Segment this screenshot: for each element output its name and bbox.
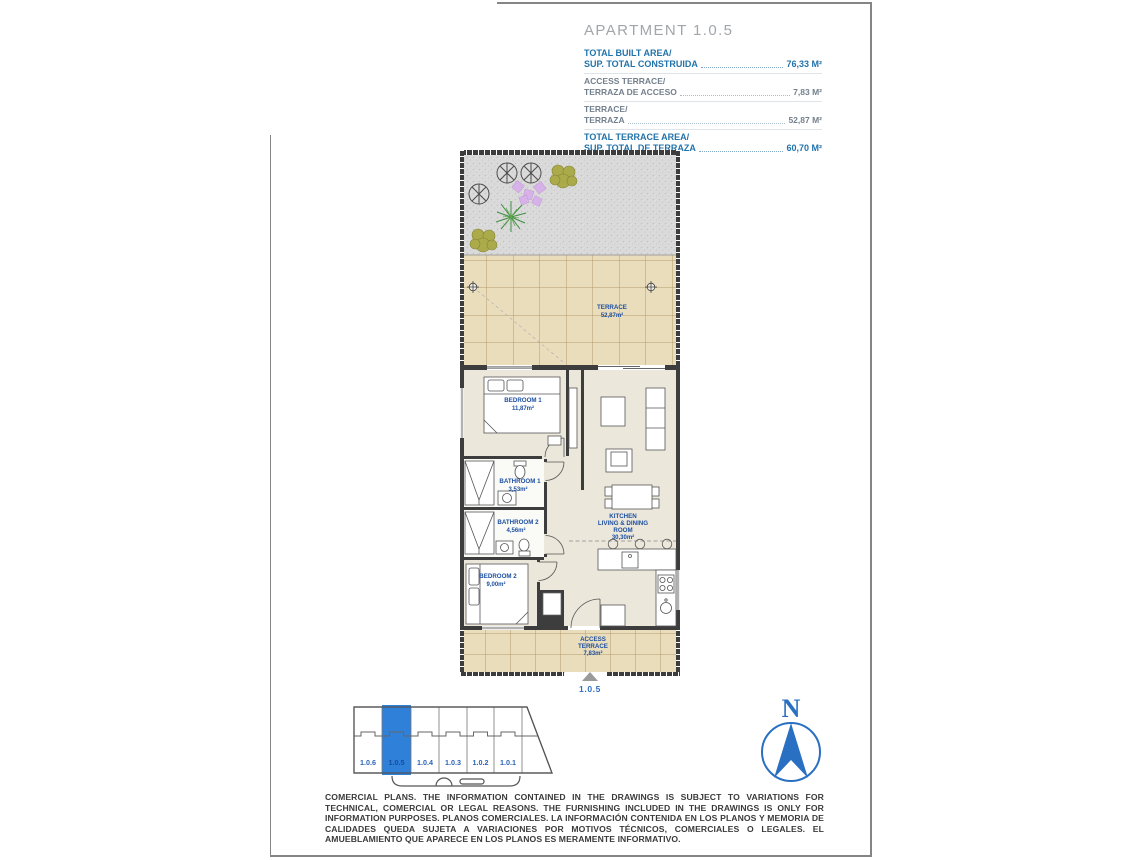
svg-text:7,83m²: 7,83m² bbox=[583, 650, 602, 657]
sheet-border-right bbox=[870, 2, 872, 857]
toilet-icon bbox=[514, 461, 526, 479]
keyplan-unit-103: 1.0.3 bbox=[445, 758, 461, 767]
sheet-border-left bbox=[270, 135, 271, 857]
area-table: TOTAL BUILT AREA/ SUP. TOTAL CONSTRUIDA7… bbox=[584, 46, 822, 157]
north-label: N bbox=[782, 694, 801, 723]
svg-text:3,53m²: 3,53m² bbox=[508, 486, 527, 493]
shower-icon bbox=[465, 461, 494, 505]
hall-wardrobe bbox=[569, 388, 577, 448]
sofa bbox=[646, 388, 665, 450]
floor-plan: TERRACE 52,87m² bbox=[460, 150, 680, 698]
svg-text:KITCHEN: KITCHEN bbox=[609, 513, 637, 520]
sideboard bbox=[601, 397, 625, 426]
sheet-border-top bbox=[497, 2, 872, 4]
dotted-leader bbox=[701, 67, 784, 68]
entrance-canopy bbox=[392, 776, 520, 786]
apartment-summary: APARTMENT 1.0.5 TOTAL BUILT AREA/ SUP. T… bbox=[584, 22, 822, 157]
svg-text:9,00m²: 9,00m² bbox=[486, 581, 505, 588]
dotted-leader bbox=[699, 151, 784, 152]
hob-icon bbox=[658, 575, 674, 593]
sheet-border-bottom bbox=[270, 855, 872, 857]
svg-text:BATHROOM 1: BATHROOM 1 bbox=[499, 478, 541, 485]
coffee-table bbox=[606, 449, 632, 472]
svg-text:ACCESS: ACCESS bbox=[580, 636, 606, 643]
area-value: 52,87 M² bbox=[788, 115, 822, 126]
kitchen-unit bbox=[601, 605, 625, 626]
area-value: 7,83 M² bbox=[793, 87, 822, 98]
compass-arrow-icon bbox=[774, 723, 808, 778]
keyplan-unit-101: 1.0.1 bbox=[500, 758, 516, 767]
unit-marker: 1.0.5 bbox=[579, 672, 601, 694]
terrace-area bbox=[464, 255, 676, 365]
svg-text:1.0.5: 1.0.5 bbox=[579, 684, 601, 694]
access-terrace-area bbox=[460, 630, 680, 676]
svg-text:BEDROOM 1: BEDROOM 1 bbox=[504, 397, 542, 404]
legal-disclaimer: COMERCIAL PLANS. THE INFORMATION CONTAIN… bbox=[325, 792, 824, 845]
area-row-total-built: TOTAL BUILT AREA/ SUP. TOTAL CONSTRUIDA7… bbox=[584, 46, 822, 73]
svg-text:TERRACE: TERRACE bbox=[597, 304, 627, 311]
svg-text:TERRACE: TERRACE bbox=[578, 643, 608, 650]
area-row-terrace: TERRACE/ TERRAZA52,87 M² bbox=[584, 101, 822, 129]
toilet-icon bbox=[519, 539, 530, 556]
dotted-leader bbox=[628, 123, 786, 124]
svg-text:11,87m²: 11,87m² bbox=[512, 405, 534, 412]
marker-triangle-icon bbox=[582, 672, 598, 681]
keyplan-unit-106: 1.0.6 bbox=[360, 758, 376, 767]
key-plan: 1.0.6 1.0.5 1.0.4 1.0.3 1.0.2 1.0.1 bbox=[332, 698, 567, 798]
svg-text:BEDROOM 2: BEDROOM 2 bbox=[479, 573, 517, 580]
keyplan-unit-104: 1.0.4 bbox=[417, 758, 433, 767]
keyplan-unit-105: 1.0.5 bbox=[389, 758, 405, 767]
svg-text:4,56m²: 4,56m² bbox=[506, 527, 525, 534]
svg-text:ROOM: ROOM bbox=[613, 527, 632, 534]
dining-table bbox=[605, 485, 659, 509]
svg-text:LIVING & DINING: LIVING & DINING bbox=[598, 520, 648, 527]
area-row-access-terrace: ACCESS TERRACE/ TERRAZA DE ACCESO7,83 M² bbox=[584, 73, 822, 101]
svg-text:BATHROOM 2: BATHROOM 2 bbox=[497, 519, 539, 526]
north-arrow: N bbox=[746, 692, 836, 792]
area-value: 60,70 M² bbox=[786, 143, 822, 154]
area-value: 76,33 M² bbox=[786, 59, 822, 70]
svg-text:52,87m²: 52,87m² bbox=[601, 312, 623, 319]
dotted-leader bbox=[680, 95, 790, 96]
sink-icon bbox=[498, 491, 516, 505]
entrance-closet bbox=[543, 593, 561, 615]
keyplan-unit-102: 1.0.2 bbox=[473, 758, 489, 767]
sink-icon bbox=[496, 541, 513, 554]
page-title: APARTMENT 1.0.5 bbox=[584, 22, 822, 39]
shower-icon bbox=[465, 512, 494, 554]
